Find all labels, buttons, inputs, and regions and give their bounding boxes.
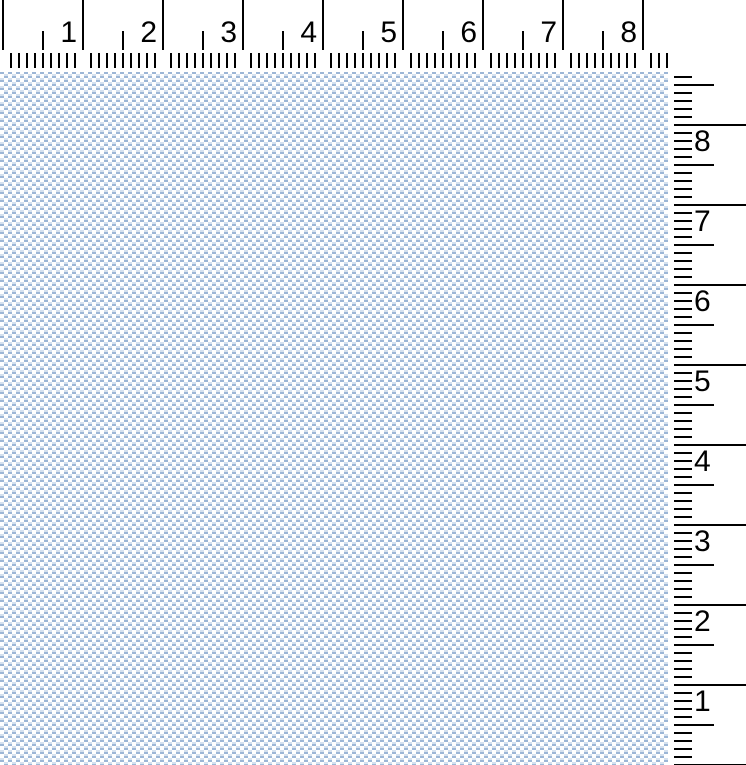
minor-tick xyxy=(674,260,692,262)
major-tick xyxy=(2,0,4,50)
minor-tick xyxy=(674,156,692,158)
minor-tick xyxy=(370,53,372,68)
minor-tick xyxy=(674,396,692,398)
minor-tick xyxy=(34,53,36,68)
minor-tick xyxy=(674,612,692,614)
ruler-unit-label: 4 xyxy=(694,447,711,477)
ruler-unit-label: 8 xyxy=(694,127,711,157)
minor-tick xyxy=(674,572,692,574)
minor-tick xyxy=(26,53,28,68)
minor-tick xyxy=(674,332,692,334)
minor-tick xyxy=(634,53,636,68)
medium-tick xyxy=(122,31,124,50)
medium-tick xyxy=(674,244,714,246)
minor-tick xyxy=(554,53,556,68)
minor-tick xyxy=(674,492,692,494)
minor-tick xyxy=(674,596,692,598)
minor-tick xyxy=(674,212,692,214)
minor-tick xyxy=(674,276,692,278)
minor-tick xyxy=(674,516,692,518)
ruler-unit-label: 5 xyxy=(694,367,711,397)
minor-tick xyxy=(674,732,692,734)
minor-tick xyxy=(578,53,580,68)
minor-tick xyxy=(674,660,692,662)
minor-tick xyxy=(74,53,76,68)
minor-tick xyxy=(498,53,500,68)
minor-tick xyxy=(306,53,308,68)
minor-tick xyxy=(178,53,180,68)
minor-tick xyxy=(674,300,692,302)
ruler-unit-label: 7 xyxy=(540,18,557,48)
minor-tick xyxy=(226,53,228,68)
minor-tick xyxy=(674,100,692,102)
minor-tick xyxy=(314,53,316,68)
minor-tick xyxy=(674,740,692,742)
minor-tick xyxy=(674,348,692,350)
minor-tick xyxy=(234,53,236,68)
minor-tick xyxy=(674,172,692,174)
minor-tick xyxy=(386,53,388,68)
minor-tick xyxy=(458,53,460,68)
minor-tick xyxy=(674,716,692,718)
minor-tick xyxy=(674,228,692,230)
minor-tick xyxy=(674,468,692,470)
minor-tick xyxy=(538,53,540,68)
minor-tick xyxy=(674,356,692,358)
minor-tick xyxy=(674,420,692,422)
minor-tick xyxy=(394,53,396,68)
minor-tick xyxy=(674,452,692,454)
minor-tick xyxy=(674,292,692,294)
minor-tick xyxy=(674,548,692,550)
minor-tick xyxy=(474,53,476,68)
minor-tick xyxy=(674,116,692,118)
ruler-unit-label: 5 xyxy=(380,18,397,48)
minor-tick xyxy=(410,53,412,68)
minor-tick xyxy=(674,308,692,310)
ruler-unit-label: 4 xyxy=(300,18,317,48)
ruler-unit-label: 6 xyxy=(694,287,711,317)
minor-tick xyxy=(362,53,364,68)
medium-tick xyxy=(202,31,204,50)
medium-tick xyxy=(442,31,444,50)
minor-tick xyxy=(674,220,692,222)
minor-tick xyxy=(674,700,692,702)
minor-tick xyxy=(330,53,332,68)
minor-tick xyxy=(258,53,260,68)
minor-tick xyxy=(658,53,660,68)
medium-tick xyxy=(674,164,714,166)
minor-tick xyxy=(650,53,652,68)
minor-tick xyxy=(602,53,604,68)
major-tick xyxy=(402,0,404,50)
minor-tick xyxy=(530,53,532,68)
minor-tick xyxy=(58,53,60,68)
minor-tick xyxy=(450,53,452,68)
minor-tick xyxy=(282,53,284,68)
minor-tick xyxy=(674,708,692,710)
minor-tick xyxy=(298,53,300,68)
minor-tick xyxy=(506,53,508,68)
medium-tick xyxy=(522,31,524,50)
medium-tick xyxy=(674,564,714,566)
major-tick xyxy=(642,0,644,50)
minor-tick xyxy=(674,620,692,622)
minor-tick xyxy=(674,196,692,198)
minor-tick xyxy=(674,628,692,630)
minor-tick xyxy=(114,53,116,68)
minor-tick xyxy=(674,668,692,670)
minor-tick xyxy=(570,53,572,68)
minor-tick xyxy=(674,108,692,110)
minor-tick xyxy=(418,53,420,68)
minor-tick xyxy=(434,53,436,68)
minor-tick xyxy=(546,53,548,68)
minor-tick xyxy=(674,268,692,270)
minor-tick xyxy=(674,652,692,654)
minor-tick xyxy=(130,53,132,68)
minor-tick xyxy=(674,148,692,150)
minor-tick xyxy=(674,428,692,430)
minor-tick xyxy=(674,476,692,478)
minor-tick xyxy=(154,53,156,68)
minor-tick xyxy=(202,53,204,68)
minor-tick xyxy=(674,340,692,342)
major-tick xyxy=(162,0,164,50)
minor-tick xyxy=(586,53,588,68)
minor-tick xyxy=(594,53,596,68)
minor-tick xyxy=(138,53,140,68)
major-tick xyxy=(82,0,84,50)
minor-tick xyxy=(674,92,692,94)
minor-tick xyxy=(674,412,692,414)
minor-tick xyxy=(674,436,692,438)
minor-tick xyxy=(618,53,620,68)
major-tick xyxy=(482,0,484,50)
minor-tick xyxy=(674,532,692,534)
minor-tick xyxy=(466,53,468,68)
minor-tick xyxy=(250,53,252,68)
minor-tick xyxy=(674,500,692,502)
minor-tick xyxy=(674,372,692,374)
medium-tick xyxy=(674,484,714,486)
minor-tick xyxy=(122,53,124,68)
minor-tick xyxy=(186,53,188,68)
minor-tick xyxy=(674,180,692,182)
ruler-unit-label: 3 xyxy=(220,18,237,48)
minor-tick xyxy=(42,53,44,68)
ruler-unit-label: 3 xyxy=(694,527,711,557)
ruler-unit-label: 1 xyxy=(694,687,711,717)
minor-tick xyxy=(90,53,92,68)
minor-tick xyxy=(378,53,380,68)
minor-tick xyxy=(442,53,444,68)
minor-tick xyxy=(290,53,292,68)
minor-tick xyxy=(346,53,348,68)
minor-tick xyxy=(674,460,692,462)
ruler-unit-label: 1 xyxy=(60,18,77,48)
minor-tick xyxy=(674,252,692,254)
ruler-unit-label: 2 xyxy=(140,18,157,48)
ruler-unit-label: 8 xyxy=(620,18,637,48)
minor-tick xyxy=(266,53,268,68)
medium-tick xyxy=(282,31,284,50)
minor-tick xyxy=(66,53,68,68)
major-tick xyxy=(242,0,244,50)
major-tick xyxy=(562,0,564,50)
minor-tick xyxy=(338,53,340,68)
minor-tick xyxy=(674,556,692,558)
major-tick xyxy=(322,0,324,50)
minor-tick xyxy=(674,188,692,190)
minor-tick xyxy=(106,53,108,68)
minor-tick xyxy=(210,53,212,68)
minor-tick xyxy=(10,53,12,68)
vertical-ruler[interactable]: 87654321 xyxy=(668,0,746,765)
minor-tick xyxy=(50,53,52,68)
minor-tick xyxy=(674,636,692,638)
medium-tick xyxy=(602,31,604,50)
minor-tick xyxy=(674,380,692,382)
minor-tick xyxy=(674,748,692,750)
minor-tick xyxy=(18,53,20,68)
ruler-unit-label: 7 xyxy=(694,207,711,237)
minor-tick xyxy=(674,76,692,78)
minor-tick xyxy=(610,53,612,68)
app-window: 12345678 87654321 xyxy=(0,0,746,765)
minor-tick xyxy=(514,53,516,68)
minor-tick xyxy=(674,316,692,318)
minor-tick xyxy=(674,580,692,582)
minor-tick xyxy=(674,756,692,758)
minor-tick xyxy=(490,53,492,68)
medium-tick xyxy=(674,404,714,406)
minor-tick xyxy=(674,676,692,678)
medium-tick xyxy=(674,324,714,326)
minor-tick xyxy=(98,53,100,68)
minor-tick xyxy=(674,508,692,510)
drawing-canvas[interactable] xyxy=(0,72,668,765)
minor-tick xyxy=(674,140,692,142)
minor-tick xyxy=(170,53,172,68)
minor-tick xyxy=(274,53,276,68)
medium-tick xyxy=(674,724,714,726)
minor-tick xyxy=(626,53,628,68)
minor-tick xyxy=(674,132,692,134)
medium-tick xyxy=(674,644,714,646)
minor-tick xyxy=(354,53,356,68)
minor-tick xyxy=(194,53,196,68)
minor-tick xyxy=(674,540,692,542)
horizontal-ruler[interactable]: 12345678 xyxy=(0,0,668,72)
medium-tick xyxy=(674,84,714,86)
minor-tick xyxy=(674,588,692,590)
medium-tick xyxy=(42,31,44,50)
minor-tick xyxy=(674,692,692,694)
ruler-unit-label: 6 xyxy=(460,18,477,48)
ruler-unit-label: 2 xyxy=(694,607,711,637)
minor-tick xyxy=(146,53,148,68)
medium-tick xyxy=(362,31,364,50)
minor-tick xyxy=(426,53,428,68)
minor-tick xyxy=(522,53,524,68)
minor-tick xyxy=(674,388,692,390)
minor-tick xyxy=(674,236,692,238)
minor-tick xyxy=(218,53,220,68)
